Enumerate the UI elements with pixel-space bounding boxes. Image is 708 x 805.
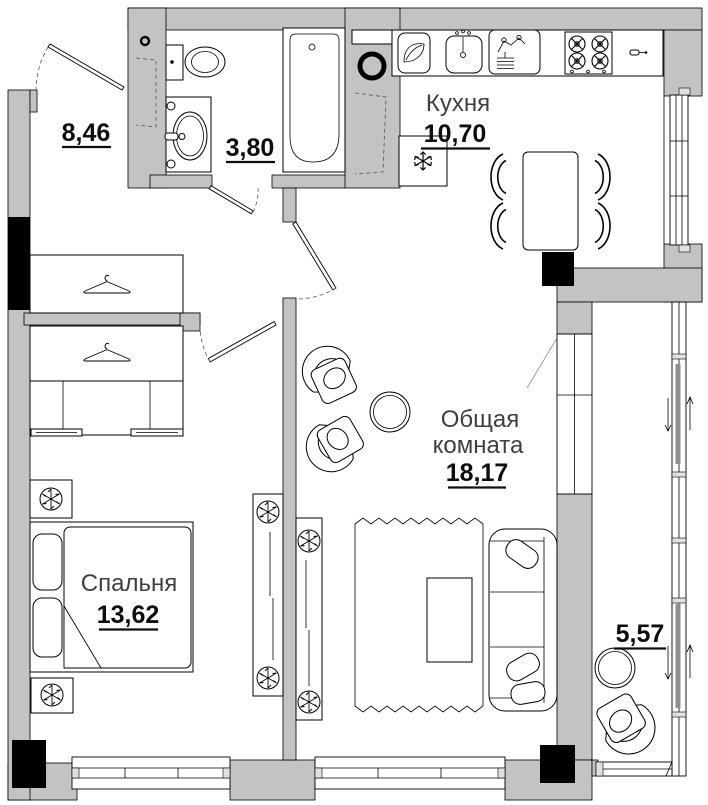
balcony-table <box>595 648 635 688</box>
living-window <box>315 757 505 789</box>
column-kitchen-living <box>542 252 574 286</box>
washbasin <box>165 97 211 172</box>
gas-stove <box>565 32 612 74</box>
floor-plan-canvas: 8,46 3,80 Кухня 10,70 Общая комната 18,1… <box>0 0 708 805</box>
plant-icon <box>298 691 320 713</box>
nightstand <box>31 678 73 713</box>
dining-table <box>523 152 578 250</box>
wall-left <box>8 90 30 800</box>
bedroom-window <box>72 757 230 789</box>
plant-icon <box>298 530 320 552</box>
hallway-wardrobe <box>30 255 183 313</box>
hallway-area-label: 8,46 <box>62 119 111 147</box>
column-left <box>8 217 30 310</box>
plant-icon <box>40 488 62 510</box>
wall-balcony-divider-top <box>557 302 592 334</box>
floor-plan: 8,46 3,80 Кухня 10,70 Общая комната 18,1… <box>0 0 708 805</box>
plant-icon <box>257 667 279 689</box>
living-name-line2: комната <box>433 432 524 459</box>
sliding-sash <box>676 364 681 464</box>
balcony-glazing-bottom <box>596 762 672 776</box>
column-bottom-right <box>540 745 575 783</box>
wall-hall-bath-divider <box>128 8 166 188</box>
plant-icon <box>257 501 279 523</box>
gas-water-heater <box>489 30 540 74</box>
coffee-table <box>427 578 472 662</box>
balcony-area-label: 5,57 <box>616 620 665 648</box>
wall-bottom-middle <box>230 760 315 800</box>
bed <box>30 522 193 672</box>
bedroom-area-label: 13,62 <box>97 601 160 629</box>
living-area-label: 18,17 <box>446 459 509 487</box>
wall-corridor-stub <box>283 188 296 222</box>
wall-hall-bedroom <box>24 313 200 325</box>
shaft-shelf <box>352 30 397 44</box>
living-name-line1: Общая <box>441 406 520 433</box>
wall-bedroom-living-divider <box>283 298 296 760</box>
bathtub <box>283 28 345 172</box>
sliding-sash <box>676 604 681 708</box>
bedroom-wardrobe <box>30 326 183 436</box>
kitchen-sink <box>446 30 482 73</box>
wall-left-step <box>30 90 37 112</box>
wall-right-top <box>664 30 702 96</box>
plant-shelf <box>253 494 283 696</box>
sofa <box>489 529 557 711</box>
wall-bath-bottom-right <box>272 175 346 188</box>
plant-shelf <box>296 518 322 720</box>
vent-cabinet <box>398 33 430 73</box>
toilet <box>166 45 225 80</box>
wall-kitchen-living <box>557 268 702 302</box>
wall-top <box>128 8 702 30</box>
column-bottom-left <box>12 740 46 788</box>
wall-balcony-divider-bottom <box>557 494 592 760</box>
kitchen-area-label: 10,70 <box>424 120 487 148</box>
bedroom-name-label: Спальня <box>81 570 177 597</box>
bathroom-area-label: 3,80 <box>226 134 275 162</box>
nightstand <box>30 480 72 518</box>
wall-bath-bottom-left <box>150 175 212 188</box>
side-table <box>370 392 410 432</box>
plant-icon <box>41 684 63 706</box>
kitchen-name-label: Кухня <box>426 90 490 117</box>
